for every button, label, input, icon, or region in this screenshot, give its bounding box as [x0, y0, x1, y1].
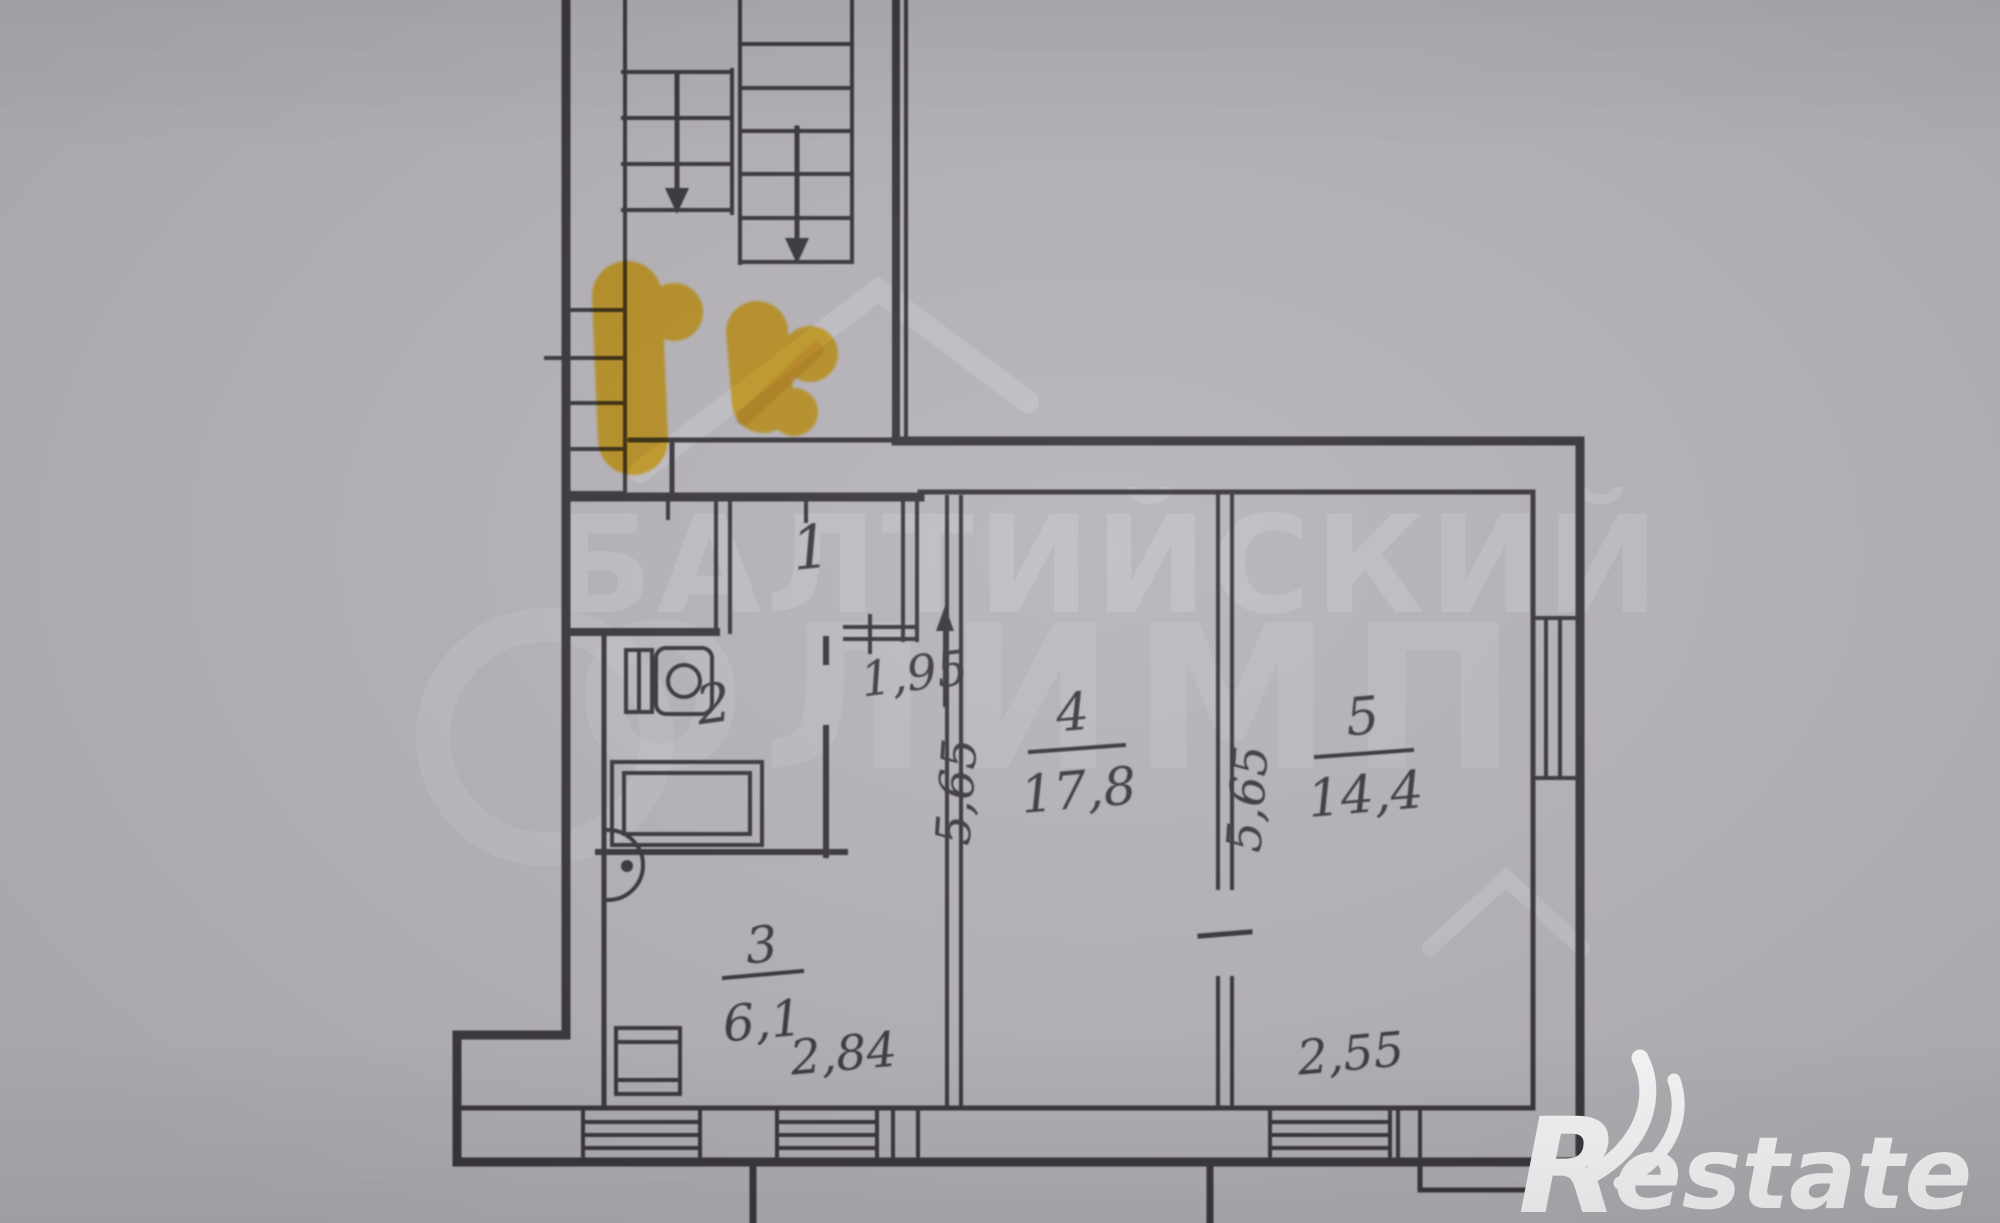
- stove: [616, 1028, 680, 1094]
- watermark-roof-small-icon: [1430, 878, 1582, 948]
- restate-logo-suffix: estate: [1614, 1115, 1972, 1223]
- window-room4: [777, 1108, 877, 1162]
- dim-room5-depth: 5,65: [1216, 744, 1279, 855]
- section-lines-below: [753, 1162, 1210, 1223]
- stove-lines: [616, 1042, 680, 1080]
- floor-plan-drawing: БАЛТИЙСКИЙ ОЛИМП: [0, 0, 2000, 1223]
- room-5-area: 14,4: [1305, 760, 1426, 830]
- room5-door-tick: [1200, 932, 1250, 936]
- room-4-number: 4: [1052, 682, 1091, 745]
- dim-room4-width: 2,84: [787, 1022, 899, 1087]
- highlight-dot-left: [645, 283, 703, 341]
- dim-room4-depth: 5,65: [925, 737, 988, 848]
- window-room5-bottom: [1270, 1108, 1390, 1162]
- room-1-number: 1: [788, 511, 833, 585]
- floor-plan-scan: БАЛТИЙСКИЙ ОЛИМП: [0, 0, 2000, 1223]
- highlighter-marks: [627, 283, 838, 440]
- dim-room5-width: 2,55: [1294, 1022, 1406, 1087]
- kitchen-sink-drain: [621, 860, 633, 872]
- room-5-number: 5: [1343, 686, 1381, 749]
- restate-logo: R estate: [1518, 1058, 1972, 1223]
- room-3-number: 3: [743, 915, 780, 976]
- highlight-blob-left: [627, 296, 633, 440]
- kitchen-fixtures: [608, 830, 680, 1094]
- room-4-area: 17,8: [1018, 756, 1139, 826]
- window-kitchen: [583, 1108, 700, 1162]
